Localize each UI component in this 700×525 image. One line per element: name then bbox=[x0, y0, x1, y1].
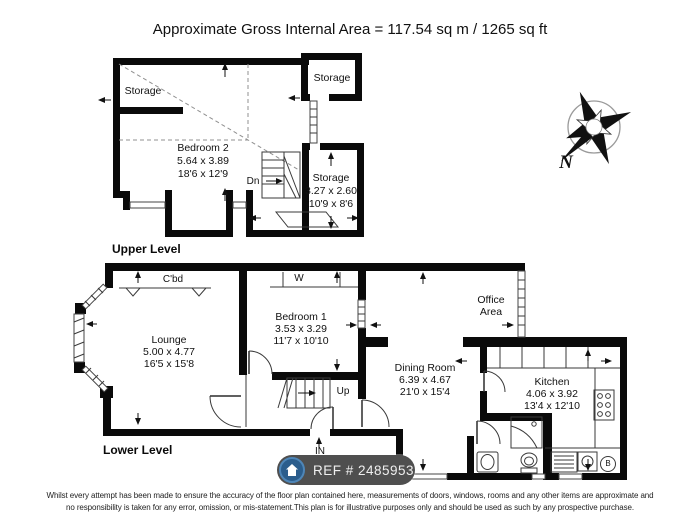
room-label-storage-left: Storage bbox=[125, 85, 162, 97]
room-label-lounge: Lounge bbox=[151, 334, 186, 346]
room-label-dining: Dining Room bbox=[395, 362, 456, 374]
cupboard bbox=[119, 288, 211, 296]
boiler-label: B bbox=[605, 458, 610, 470]
disclaimer-line-1: Whilst every attempt has been made to en… bbox=[0, 491, 700, 500]
north-label: N bbox=[559, 152, 573, 174]
room-dims-bedroom1-metric: 3.53 x 3.29 bbox=[275, 323, 327, 335]
floorplan-page: Approximate Gross Internal Area = 117.54… bbox=[0, 0, 700, 525]
upper-level-label: Upper Level bbox=[112, 242, 181, 256]
bay-window bbox=[74, 284, 108, 392]
room-dims-lounge-metric: 5.00 x 4.77 bbox=[143, 346, 195, 358]
ref-badge-label: REF # 2485953 bbox=[313, 463, 414, 478]
room-dims-kitchen-imperial: 13'4 x 12'10 bbox=[524, 400, 580, 412]
bedroom1-door-arc bbox=[249, 351, 272, 374]
bathroom-fixtures bbox=[477, 417, 542, 473]
room-label-storage-right: Storage bbox=[313, 172, 350, 184]
room-label-bedroom1: Bedroom 1 bbox=[275, 311, 326, 323]
cupboard-label: C'bd bbox=[163, 274, 183, 286]
stairs-up-label: Up bbox=[337, 386, 350, 398]
room-dims-storage-metric: 3.27 x 2.60 bbox=[305, 185, 357, 197]
room-dims-dining-metric: 6.39 x 4.67 bbox=[399, 374, 451, 386]
drainer-icon bbox=[551, 452, 577, 472]
entrance-door-arc bbox=[311, 407, 333, 429]
wardrobe-label: W bbox=[294, 273, 303, 285]
room-dims-dining-imperial: 21'0 x 15'4 bbox=[400, 386, 450, 398]
stairs-down-label: Dn bbox=[247, 176, 260, 188]
room-label-storage-top-right: Storage bbox=[314, 72, 351, 84]
room-dims-bedroom2-metric: 5.64 x 3.89 bbox=[177, 155, 229, 167]
room-dims-bedroom1-imperial: 11'7 x 10'10 bbox=[273, 335, 328, 347]
house-icon bbox=[279, 457, 305, 483]
office-area-label-1: Office bbox=[477, 294, 504, 306]
wardrobe bbox=[270, 272, 358, 287]
shower-icon bbox=[511, 417, 542, 448]
bathroom-door-arc bbox=[477, 421, 500, 444]
office-area-label-2: Area bbox=[480, 306, 502, 318]
dining-door-arc bbox=[362, 400, 389, 427]
kitchen-door-arc bbox=[484, 371, 505, 392]
room-label-kitchen: Kitchen bbox=[534, 376, 569, 388]
room-dims-kitchen-metric: 4.06 x 3.92 bbox=[526, 388, 578, 400]
room-dims-lounge-imperial: 16'5 x 15'8 bbox=[144, 358, 194, 370]
lower-level-label: Lower Level bbox=[103, 443, 172, 457]
room-dims-bedroom2-imperial: 18'6 x 12'9 bbox=[178, 168, 228, 180]
stairs-up-icon bbox=[278, 378, 330, 408]
ref-badge: REF # 2485953 bbox=[277, 455, 415, 485]
lounge-door-arc bbox=[210, 396, 241, 427]
room-dims-storage-imperial: 10'9 x 8'6 bbox=[309, 198, 353, 210]
room-label-bedroom2: Bedroom 2 bbox=[177, 142, 228, 154]
disclaimer-line-2: no responsibility is taken for any error… bbox=[0, 503, 700, 512]
hob-icon bbox=[594, 390, 614, 420]
